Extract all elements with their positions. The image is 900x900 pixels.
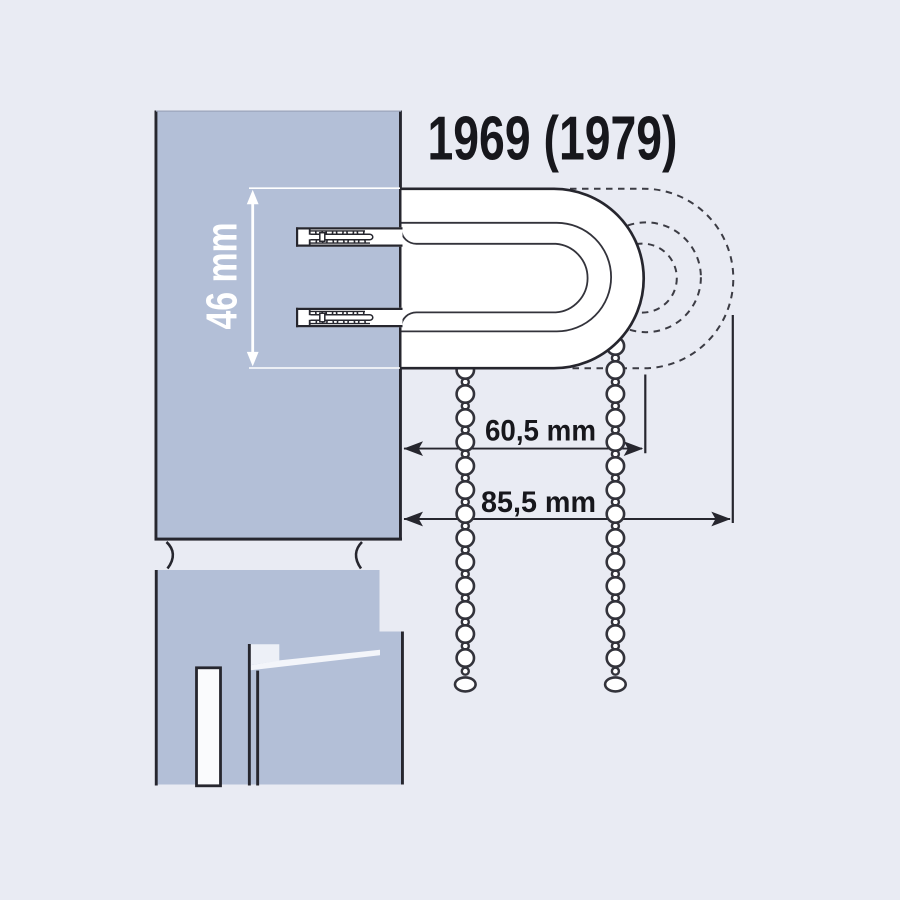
svg-text:85,5 mm: 85,5 mm bbox=[481, 486, 596, 519]
svg-text:1969 (1979): 1969 (1979) bbox=[428, 105, 678, 174]
svg-text:46 mm: 46 mm bbox=[198, 223, 247, 330]
svg-text:60,5 mm: 60,5 mm bbox=[485, 415, 596, 448]
